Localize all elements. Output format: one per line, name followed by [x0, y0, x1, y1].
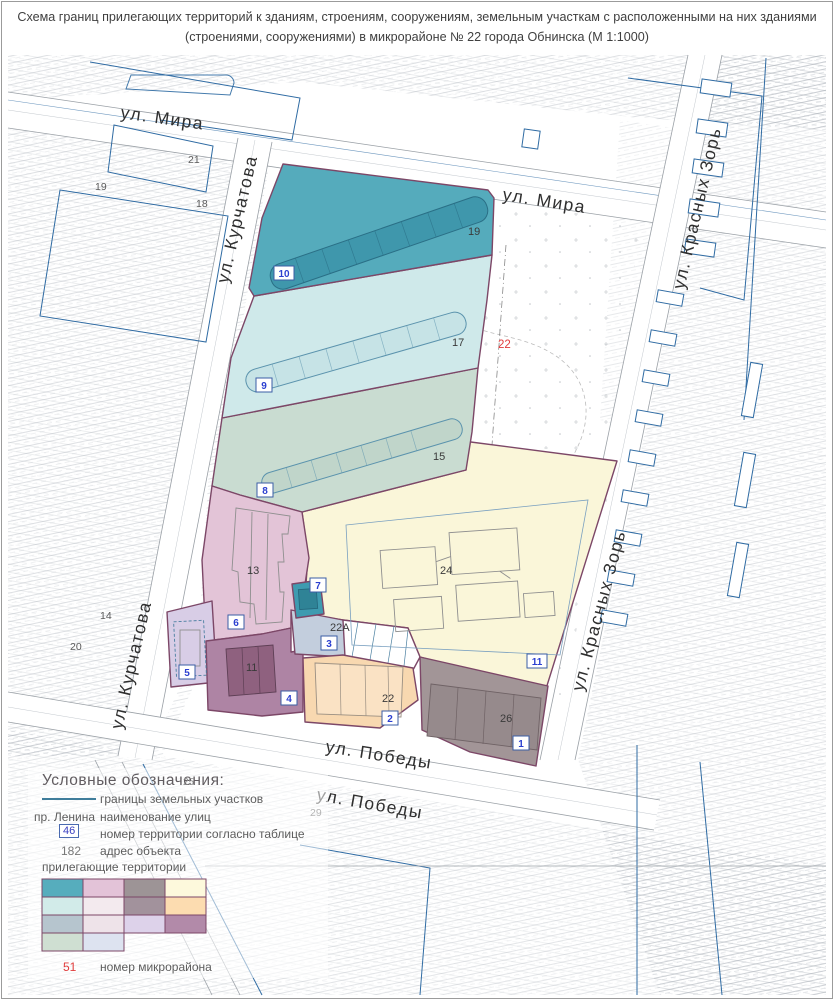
- legend-street-key: пр. Ленина: [34, 810, 95, 824]
- legend-boundary-label: границы земельных участков: [100, 792, 263, 806]
- swatch-14: [83, 933, 124, 951]
- legend-territory-key: 46: [59, 824, 79, 838]
- bg-number-21: 21: [188, 154, 200, 166]
- svg-text:4: 4: [286, 694, 292, 705]
- building-number-19: 19: [468, 226, 480, 238]
- svg-text:2: 2: [387, 714, 393, 725]
- building-number-22: 22: [382, 693, 394, 705]
- swatch-1: [42, 879, 83, 897]
- territory-badge-8: 8: [257, 483, 273, 497]
- legend-micro-label: номер микрорайона: [100, 960, 212, 974]
- building-number-11: 11: [246, 662, 257, 674]
- territory-badge-7: 7: [310, 578, 326, 592]
- svg-text:10: 10: [278, 269, 290, 280]
- building-number-22a: 22А: [330, 622, 350, 634]
- territory-badge-9: 9: [256, 378, 272, 392]
- swatch-6: [83, 897, 124, 915]
- swatch-8: [165, 897, 206, 915]
- legend-address-key: 182: [61, 844, 81, 858]
- territory-badge-5: 5: [179, 665, 195, 679]
- svg-text:5: 5: [184, 668, 190, 679]
- swatch-12: [165, 915, 206, 933]
- svg-text:7: 7: [315, 581, 321, 592]
- swatch-7: [124, 897, 165, 915]
- bg-number-14: 14: [100, 610, 112, 622]
- swatch-4: [165, 879, 206, 897]
- bg-number-19: 19: [95, 181, 107, 193]
- scheme-page: Схема границ прилегающих территорий к зд…: [0, 0, 834, 1000]
- territory-badge-10: 10: [274, 266, 294, 280]
- svg-text:1: 1: [518, 739, 524, 750]
- svg-text:3: 3: [326, 639, 332, 650]
- bg-number-18: 18: [196, 198, 208, 210]
- building-number-17: 17: [452, 337, 464, 349]
- building-number-26: 26: [500, 713, 512, 725]
- svg-text:6: 6: [233, 618, 239, 629]
- building-number-24: 24: [440, 565, 452, 577]
- title-line-2: (строениями, сооружениями) в микрорайоне…: [10, 27, 824, 47]
- bg-number-20: 20: [70, 641, 82, 653]
- legend-swatch-grid: [41, 878, 211, 954]
- building-number-13: 13: [247, 565, 259, 577]
- svg-text:9: 9: [261, 381, 267, 392]
- swatch-13: [42, 933, 83, 951]
- swatch-2: [83, 879, 124, 897]
- legend-street-label: наименование улиц: [100, 810, 211, 824]
- legend-territory-label: номер территории согласно таблице: [100, 827, 305, 841]
- page-title: Схема границ прилегающих территорий к зд…: [10, 7, 824, 47]
- swatch-9: [42, 915, 83, 933]
- legend-micro-key: 51: [63, 960, 76, 974]
- legend-adjacent-title: прилегающие территории: [42, 860, 186, 874]
- swatch-10: [83, 915, 124, 933]
- legend: Условные обозначения: 25 границы земельн…: [28, 768, 328, 978]
- svg-text:8: 8: [262, 486, 268, 497]
- territory-badge-1: 1: [513, 736, 529, 750]
- territory-badge-3: 3: [321, 636, 337, 650]
- building-22: [315, 663, 403, 717]
- swatch-3: [124, 879, 165, 897]
- boundary-line-swatch: [42, 798, 96, 800]
- legend-bg-number: 25: [183, 777, 194, 788]
- title-line-1: Схема границ прилегающих территорий к зд…: [10, 7, 824, 27]
- territory-badge-2: 2: [382, 711, 398, 725]
- microdistrict-number: 22: [498, 339, 511, 351]
- legend-address-label: адрес объекта: [100, 844, 181, 858]
- territory-badge-4: 4: [281, 691, 297, 705]
- legend-title: Условные обозначения:: [42, 772, 224, 790]
- svg-text:11: 11: [532, 657, 543, 668]
- building-number-15: 15: [433, 451, 445, 463]
- territory-badge-6: 6: [228, 615, 244, 629]
- swatch-11: [124, 915, 165, 933]
- territory-badge-11: 11: [527, 654, 547, 668]
- swatch-5: [42, 897, 83, 915]
